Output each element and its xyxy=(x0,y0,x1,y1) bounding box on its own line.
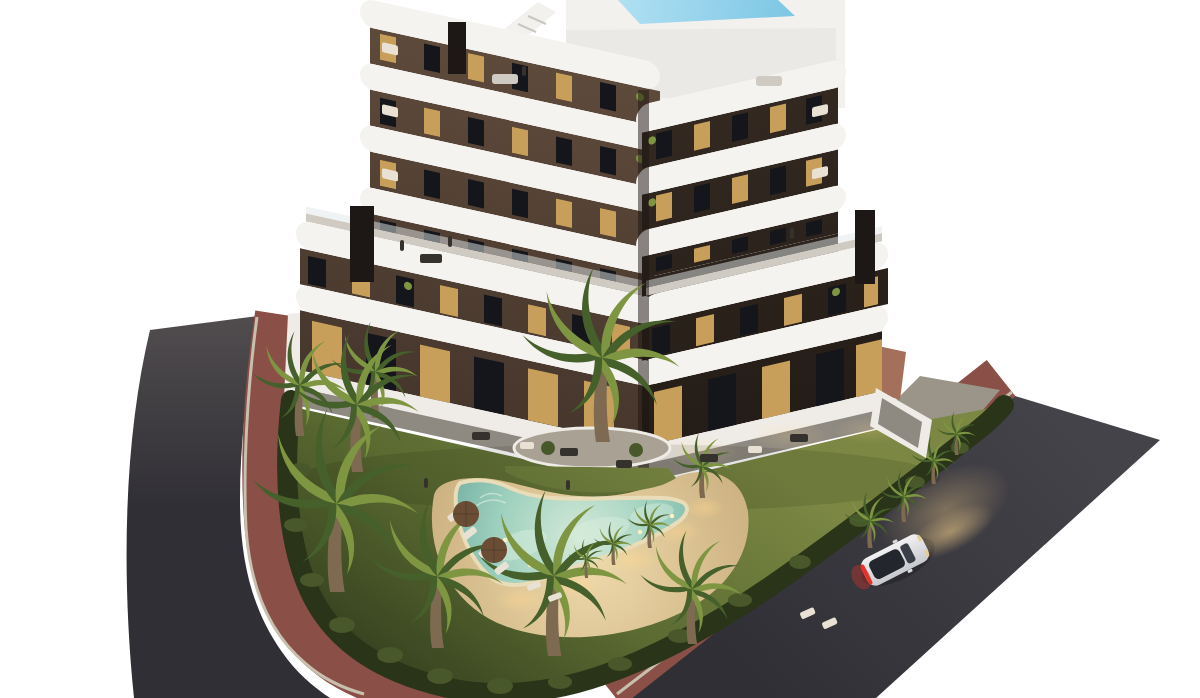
person xyxy=(448,236,452,247)
pool-perimeter-glow xyxy=(494,587,546,613)
rooftop-sofa xyxy=(756,76,782,86)
apartment-building xyxy=(296,0,888,485)
island-grass xyxy=(541,441,555,455)
pool-perimeter-glow xyxy=(685,497,725,519)
chimney xyxy=(855,210,875,284)
person xyxy=(566,480,570,490)
patio-sofa xyxy=(520,442,534,449)
architectural-render: Dusk aerial 3D architectural rendering o… xyxy=(0,0,1200,698)
terrace-table xyxy=(420,254,442,263)
corner-shadow xyxy=(638,90,649,472)
planting-island xyxy=(514,428,670,468)
person xyxy=(400,240,404,251)
island-grass xyxy=(629,443,643,457)
person xyxy=(790,228,794,239)
chimney xyxy=(448,22,466,74)
render-scene: Dusk aerial 3D architectural rendering o… xyxy=(0,0,1200,698)
person xyxy=(424,478,428,488)
chimney xyxy=(350,206,374,282)
patio-sofa xyxy=(748,446,762,453)
rooftop-sofa xyxy=(492,74,518,84)
person xyxy=(522,66,526,76)
